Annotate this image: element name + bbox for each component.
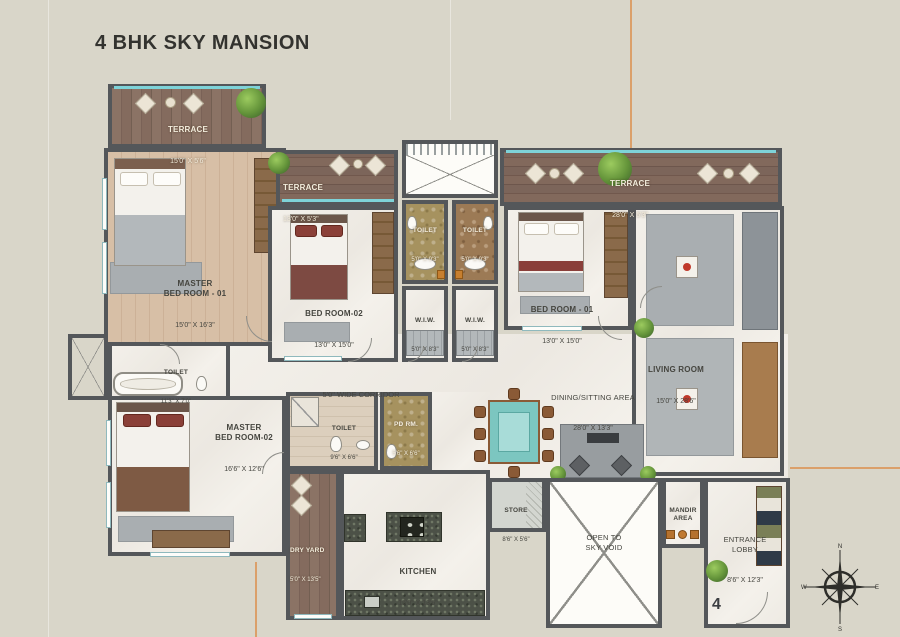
- room-label-dry-yard: DRY YARD 5'0" X 13'5": [290, 526, 338, 606]
- room-label-toilet-master-02: TOILET 9'6" X 6'6": [314, 404, 374, 484]
- room-name: BED ROOM - 01: [512, 305, 612, 315]
- window: [294, 614, 332, 619]
- terrace-table: [353, 159, 363, 169]
- terrace-railing: [506, 150, 776, 153]
- room-name: MASTER BED ROOM - 01: [135, 279, 255, 300]
- kitchen-counter: [344, 514, 366, 542]
- window: [150, 552, 230, 557]
- room-label-open-to-sky-void: OPEN TO SKY VOID: [568, 512, 640, 573]
- room-dims: 5'6" X 6'6": [382, 451, 430, 459]
- guide-line-vertical-top: [630, 0, 632, 148]
- window: [102, 178, 107, 230]
- room-label-bedroom-02: BED ROOM-02 13'0" X 15'0": [288, 288, 380, 371]
- room-dims: 5'0" X 8'3": [452, 347, 498, 355]
- room-name: TERRACE: [560, 179, 700, 189]
- room-dims: 15'0" X 13'6": [380, 599, 456, 608]
- compass-west-label: W: [801, 585, 807, 591]
- room-label-toilet-b: TOILET 5'0" X 9'3": [452, 206, 498, 286]
- room-dims: 5'0" X 9'3": [402, 257, 448, 265]
- room-dims: 13'0" X 15'0": [288, 341, 380, 350]
- compass-east-label: E: [875, 585, 879, 591]
- bed-runner: [519, 261, 583, 271]
- background-seam: [48, 0, 49, 637]
- floor-plan-page: { "title": "4 BHK SKY MANSION", "unit_nu…: [0, 0, 900, 637]
- room-dims: 5'0" X 8'3": [402, 347, 448, 355]
- room-label-master-bedroom-01: MASTER BED ROOM - 01 15'0" X 16'3": [135, 258, 255, 351]
- dining-table-top: [498, 412, 530, 452]
- room-name: BED ROOM-02: [288, 309, 380, 319]
- room-name: TOILET: [402, 227, 448, 235]
- window: [106, 482, 111, 528]
- room-dims: 9'6" X 6'6": [314, 455, 374, 463]
- dining-chair: [508, 466, 520, 478]
- room-name: TOILET: [136, 369, 216, 377]
- room-label-dining-sitting: DINING/SITTING AREA 28'0" X 13'3": [528, 372, 658, 454]
- terrace-table: [723, 168, 734, 179]
- dining-chair: [474, 428, 486, 440]
- stair-hatch: [406, 144, 494, 155]
- room-label-store: STORE 8'6" X 5'6": [490, 486, 542, 566]
- room-name: TERRACE: [128, 125, 248, 135]
- room-name: TERRACE: [283, 183, 353, 193]
- background-seam: [450, 0, 451, 120]
- room-label-master-bedroom-02: MASTER BED ROOM-02 16'6" X 12'6": [196, 402, 292, 495]
- window: [102, 242, 107, 294]
- room-dims: 28'0" X 5'3": [560, 211, 700, 220]
- room-label-entrance-lobby: ENTRANCE LOBBY 8'6" X 12'3": [706, 514, 784, 606]
- room-name: OPEN TO SKY VOID: [568, 533, 640, 553]
- lift-core: [402, 140, 498, 198]
- room-dims: 13'0" X 5'3": [283, 215, 353, 224]
- stove: [400, 517, 424, 537]
- desk: [152, 530, 230, 548]
- room-dims: 8'6" X 5'6": [490, 537, 542, 545]
- dining-chair: [474, 406, 486, 418]
- compass-rose-icon: N S W E: [800, 542, 880, 632]
- dining-chair: [474, 450, 486, 462]
- bed-pillow: [524, 223, 549, 235]
- room-dims: 16'6" X 12'6": [196, 465, 292, 474]
- plant: [634, 318, 654, 338]
- compass-south-label: S: [838, 627, 842, 632]
- room-name: W.I.W.: [402, 317, 448, 325]
- room-label-terrace-top-left: TERRACE 15'0" X 5'6": [128, 104, 248, 187]
- room-label-terrace-top-right: TERRACE 28'0" X 5'3": [560, 158, 700, 241]
- room-dims: 5'0" X 13'5": [290, 577, 338, 585]
- room-label-toilet-a: TOILET 5'0" X 9'3": [402, 206, 448, 286]
- room-label-wiw-b: W.I.W. 5'0" X 8'3": [452, 296, 498, 376]
- room-label-wiw-a: W.I.W. 5'0" X 8'3": [402, 296, 448, 376]
- room-dims: 8'6" X 12'3": [706, 576, 784, 585]
- room-dims: 15'0" X 16'3": [135, 321, 255, 330]
- room-label-powder-room: PD RM. 5'6" X 6'6": [382, 400, 430, 480]
- compass-north-label: N: [838, 544, 842, 550]
- room-name: DINING/SITTING AREA: [528, 393, 658, 403]
- window: [106, 420, 111, 466]
- room-name: STORE: [490, 507, 542, 515]
- guide-line-horizontal-right: [790, 467, 900, 469]
- room-name: W.I.W.: [452, 317, 498, 325]
- room-name: MANDIR AREA: [660, 507, 706, 524]
- room-name: MASTER BED ROOM-02: [196, 423, 292, 444]
- service-ledge: [68, 334, 108, 400]
- sofa: [742, 212, 778, 330]
- room-dims: 15'0" X 5'6": [128, 157, 248, 166]
- kitchen-sink: [364, 596, 380, 608]
- guide-line-vertical-bottom: [255, 562, 257, 637]
- plan-title: 4 BHK SKY MANSION: [95, 32, 310, 55]
- terrace-table: [549, 168, 560, 179]
- bed-blanket: [117, 467, 189, 511]
- room-dims: 13'0" X 15'0": [512, 337, 612, 346]
- room-name: KITCHEN: [380, 567, 456, 577]
- room-label-terrace-middle: TERRACE 13'0" X 5'3": [283, 162, 353, 245]
- room-name: TOILET: [314, 425, 374, 433]
- lift-shaft: [406, 155, 494, 194]
- room-label-bedroom-01: BED ROOM - 01 13'0" X 15'0": [512, 284, 612, 367]
- room-name: PD RM.: [382, 421, 430, 429]
- terrace-railing: [114, 86, 260, 89]
- room-dims: 5'0" X 9'3": [452, 257, 498, 265]
- room-dims: 28'0" X 13'3": [528, 424, 658, 433]
- room-name: ENTRANCE LOBBY: [706, 535, 784, 555]
- room-name: TOILET: [452, 227, 498, 235]
- wardrobe: [372, 212, 394, 294]
- room-label-kitchen: KITCHEN 15'0" X 13'6": [380, 546, 456, 629]
- corridor-text: 5'0" WIDE CORRIDOR: [296, 390, 426, 400]
- flower-decor: [683, 263, 691, 271]
- room-name: DRY YARD: [290, 547, 338, 555]
- dining-chair: [508, 388, 520, 400]
- room-label-mandir: MANDIR AREA: [660, 486, 706, 544]
- wooden-sofa: [742, 342, 778, 458]
